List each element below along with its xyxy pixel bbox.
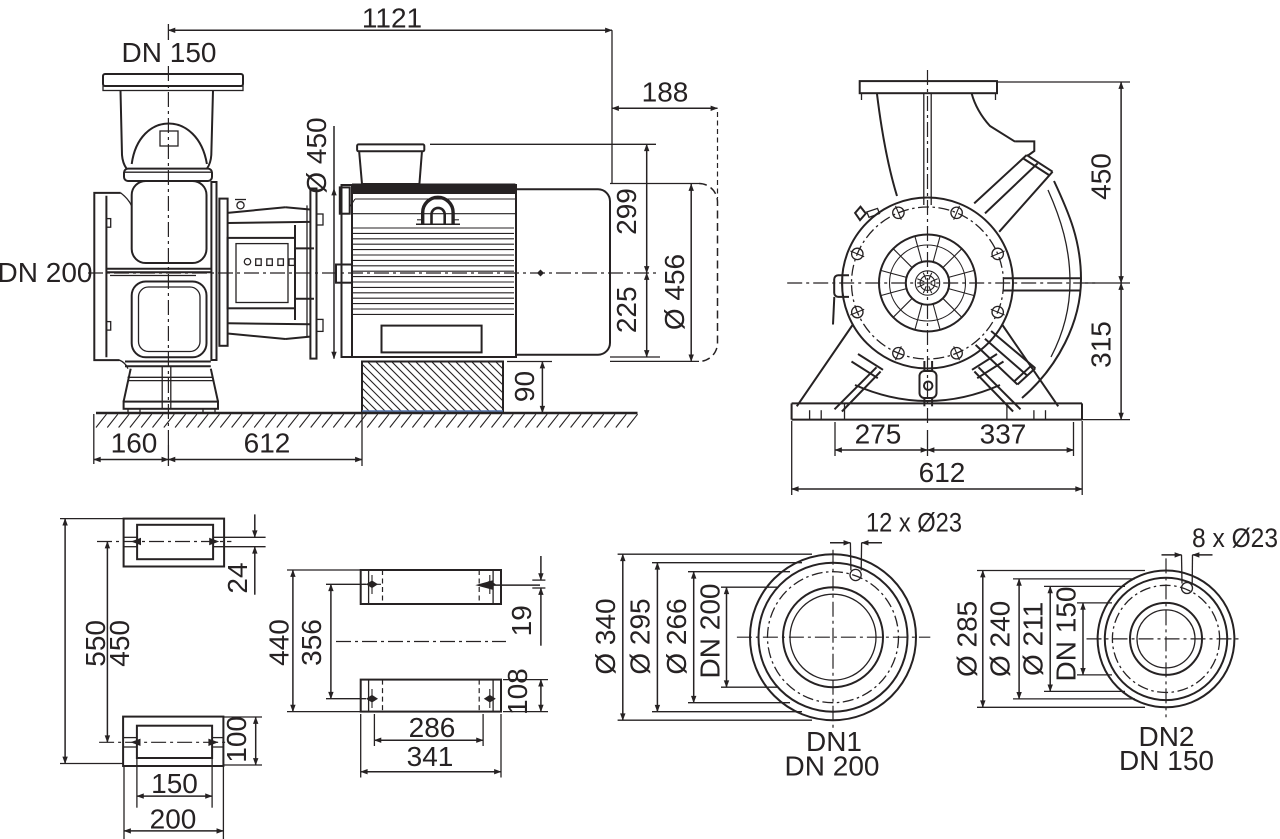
svg-text:299: 299 <box>611 188 642 235</box>
svg-text:440: 440 <box>264 619 295 666</box>
svg-text:286: 286 <box>409 712 456 743</box>
svg-text:108: 108 <box>502 668 533 715</box>
svg-text:DN 200: DN 200 <box>785 751 880 782</box>
svg-text:Ø 211: Ø 211 <box>1018 602 1049 676</box>
svg-text:450: 450 <box>1086 153 1117 200</box>
svg-text:12 x Ø23: 12 x Ø23 <box>866 508 962 538</box>
svg-text:315: 315 <box>1086 321 1117 368</box>
svg-text:337: 337 <box>980 419 1027 450</box>
svg-text:1121: 1121 <box>362 3 422 34</box>
svg-text:8 x Ø23: 8 x Ø23 <box>1192 523 1278 553</box>
svg-text:19: 19 <box>506 605 537 636</box>
svg-text:356: 356 <box>296 619 327 666</box>
svg-text:DN 150: DN 150 <box>122 37 217 68</box>
svg-text:160: 160 <box>111 428 158 459</box>
svg-text:275: 275 <box>855 419 902 450</box>
svg-text:225: 225 <box>611 286 642 333</box>
svg-text:Ø 285: Ø 285 <box>952 601 983 677</box>
svg-text:450: 450 <box>104 620 135 667</box>
svg-text:612: 612 <box>919 457 966 488</box>
svg-text:188: 188 <box>642 77 689 108</box>
svg-text:Ø 240: Ø 240 <box>985 601 1016 677</box>
svg-text:DN 200: DN 200 <box>695 584 726 679</box>
svg-text:200: 200 <box>150 804 197 835</box>
svg-text:Ø 340: Ø 340 <box>590 598 621 674</box>
svg-text:Ø 295: Ø 295 <box>625 598 656 674</box>
svg-text:Ø 456: Ø 456 <box>659 254 690 330</box>
svg-text:Ø 266: Ø 266 <box>661 598 692 674</box>
svg-text:DN 200: DN 200 <box>0 257 92 288</box>
svg-text:24: 24 <box>222 562 253 593</box>
svg-text:Ø 450: Ø 450 <box>301 117 332 193</box>
svg-text:612: 612 <box>244 428 291 459</box>
svg-text:100: 100 <box>221 716 252 763</box>
svg-text:150: 150 <box>151 768 198 799</box>
svg-text:90: 90 <box>509 371 540 402</box>
svg-text:341: 341 <box>407 741 454 772</box>
svg-text:DN 150: DN 150 <box>1119 745 1214 776</box>
svg-text:DN 150: DN 150 <box>1051 587 1082 682</box>
